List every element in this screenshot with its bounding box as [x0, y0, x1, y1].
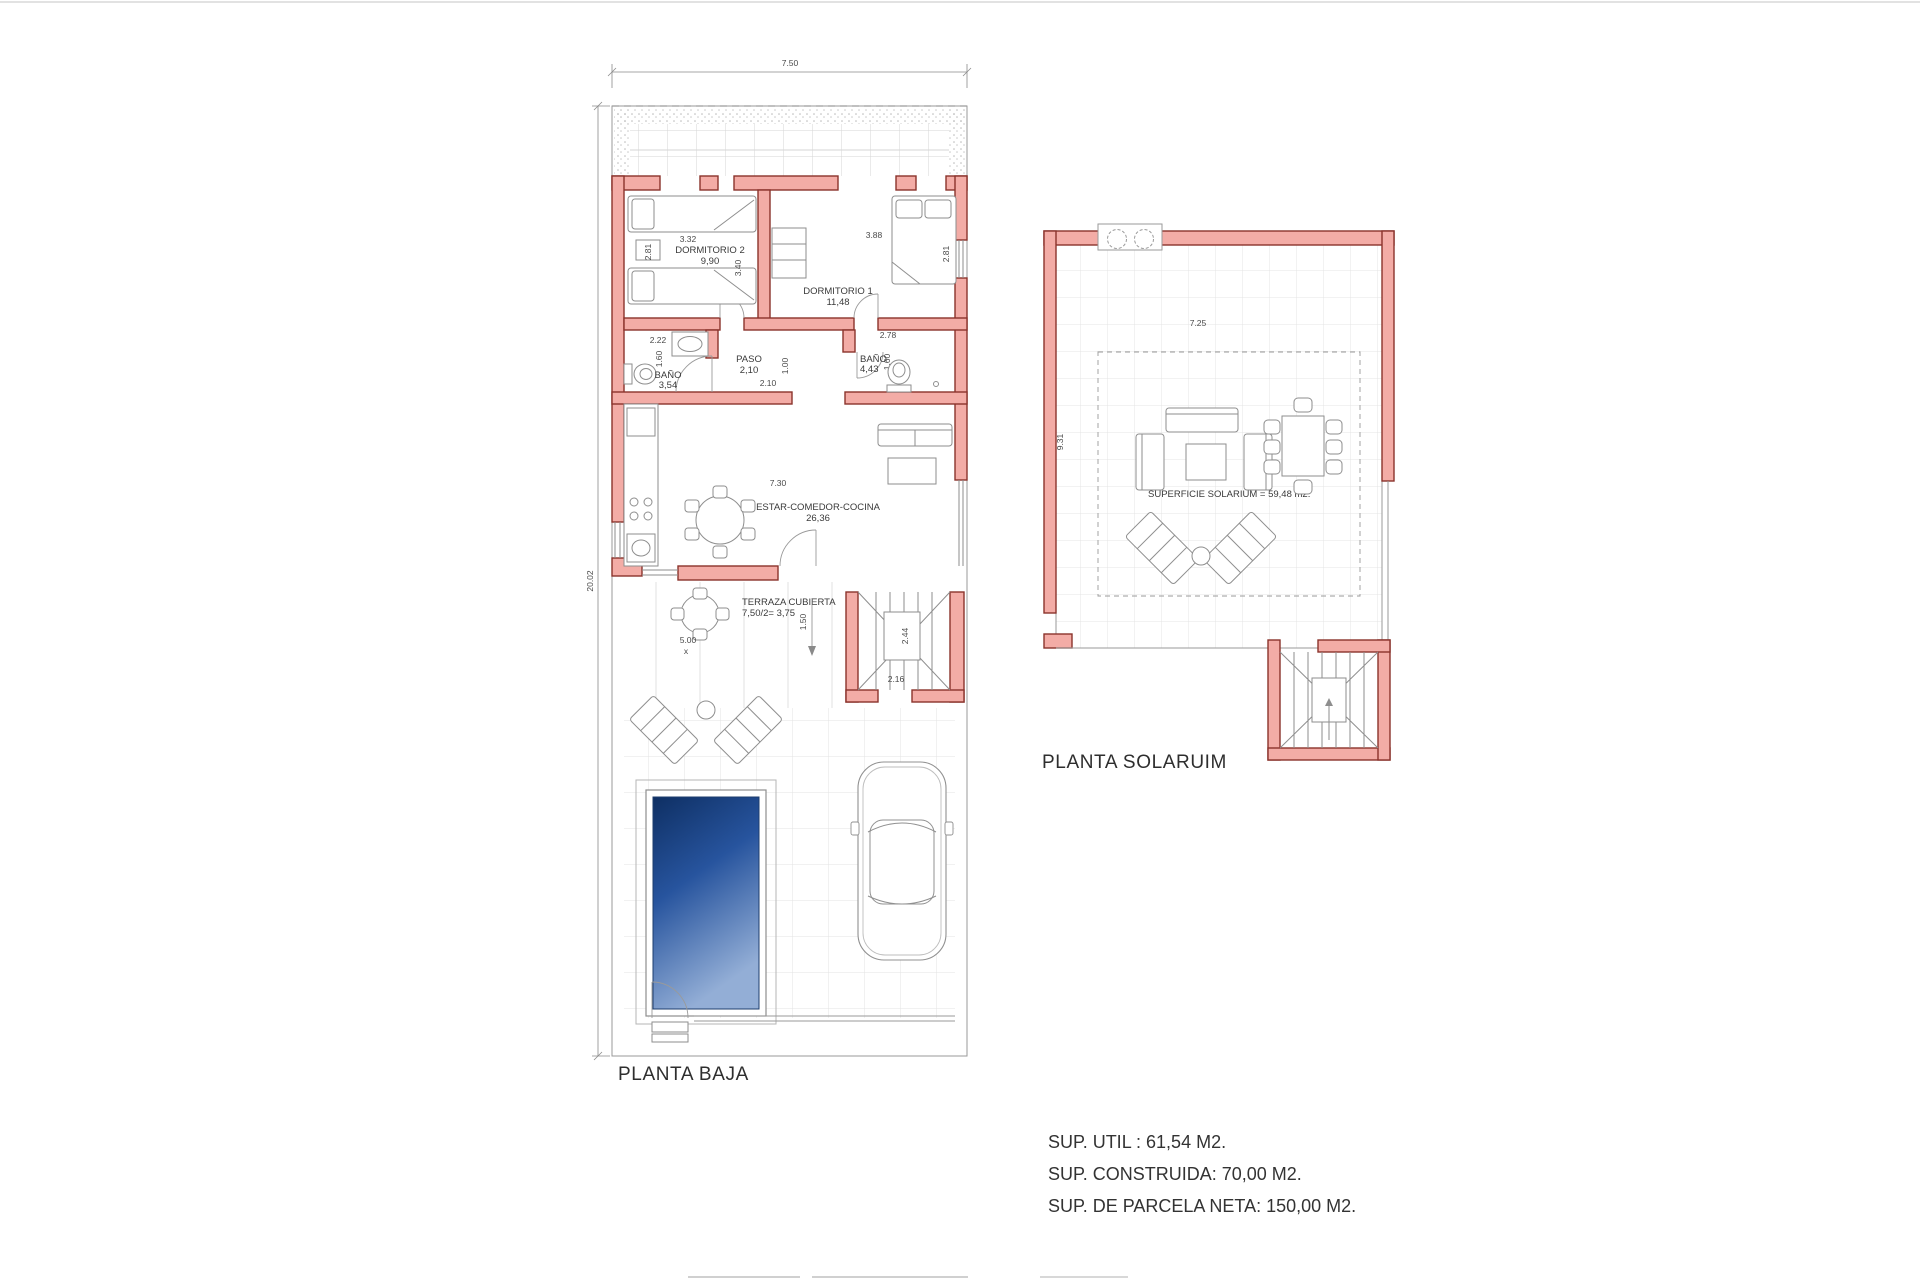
- living-kitchen: 7.30 ESTAR-COMEDOR-COCINA 26,36: [624, 404, 952, 566]
- dim-label: 3.88: [866, 230, 883, 240]
- bedroom-1: 3.88 2.81 DORMITORIO 1 11,48: [772, 196, 956, 308]
- planta-baja-title: PLANTA BAJA: [618, 1064, 749, 1085]
- room-label: PASO: [736, 354, 762, 365]
- area-label: 11,48: [826, 297, 849, 308]
- planta-solarium-title: PLANTA SOLARUIM: [1042, 752, 1227, 773]
- dim-label: 7.30: [770, 478, 787, 488]
- bathroom-2: 2.78 BAÑO 4,43 1.60: [860, 330, 939, 392]
- swimming-pool: [636, 780, 776, 1024]
- dim-label: 2.16: [888, 674, 905, 684]
- bedroom-2: 3.32 2.81 DORMITORIO 2 9,90 3.40: [628, 196, 756, 304]
- dimension-top: 7.50: [608, 58, 971, 88]
- sup-util-line: SUP. UTIL : 61,54 M2.: [1048, 1132, 1226, 1152]
- room-label: DORMITORIO 2: [675, 245, 745, 256]
- dim-label: 1.50: [798, 613, 808, 630]
- floor-plan-page: 7.50 20.02: [0, 0, 1920, 1280]
- dim-label: x: [684, 646, 689, 656]
- roof-band: [614, 108, 965, 176]
- sup-construida-line: SUP. CONSTRUIDA: 70,00 M2.: [1048, 1164, 1302, 1184]
- area-label: 7,50/2= 3,75: [742, 608, 795, 619]
- hallway: PASO 2,10 2.10 1.00: [736, 354, 790, 388]
- area-label: 9,90: [701, 256, 720, 267]
- summary-block: SUP. UTIL : 61,54 M2. SUP. CONSTRUIDA: 7…: [1048, 1132, 1356, 1216]
- dim-label: 2.81: [643, 243, 653, 260]
- area-label: 2,10: [740, 365, 759, 376]
- area-label: 4,43: [860, 364, 879, 375]
- dim-label: 2.78: [880, 330, 897, 340]
- dim-label: 5.00: [680, 635, 697, 645]
- room-label: DORMITORIO 1: [803, 286, 873, 297]
- dim-label: 7.50: [782, 58, 799, 68]
- solarium-stair-tower: [1268, 640, 1390, 760]
- sup-parcela-line: SUP. DE PARCELA NETA: 150,00 M2.: [1048, 1196, 1356, 1216]
- dim-label: 2.81: [941, 245, 951, 262]
- planta-solarium-plan: 7.25 9.31 SUPERFICIE SOLARIUM = 59,48 m2…: [1042, 224, 1394, 773]
- dimension-left: 20.02: [585, 102, 610, 1060]
- room-label: ESTAR-COMEDOR-COCINA: [756, 502, 881, 513]
- dim-label: 2.44: [900, 627, 910, 644]
- room-label: TERRAZA CUBIERTA: [742, 597, 836, 608]
- dim-label: 20.02: [585, 570, 595, 592]
- dim-label: 3.32: [680, 234, 697, 244]
- dim-label: 2.22: [650, 335, 667, 345]
- planta-baja-plan: 7.50 20.02: [585, 58, 971, 1085]
- staircase: 2.44 2.16: [858, 592, 950, 690]
- dim-label: 2.10: [760, 378, 777, 388]
- dim-label: 9.31: [1055, 433, 1065, 450]
- car: [851, 762, 953, 960]
- dim-label: 3.40: [733, 259, 743, 276]
- area-label: 3,54: [659, 380, 678, 391]
- solarium-surface-label: SUPERFICIE SOLARIUM = 59,48 m2.: [1148, 489, 1310, 500]
- bathroom-1: 2.22 1.60 BAÑO 3,54: [624, 332, 708, 391]
- dim-label: 7.25: [1190, 318, 1207, 328]
- vent-block: [1098, 224, 1162, 250]
- floor-plan-drawing: 7.50 20.02: [0, 0, 1920, 1280]
- area-label: 26,36: [806, 513, 830, 524]
- dim-label: 1.00: [780, 357, 790, 374]
- dim-label: 1.60: [654, 350, 664, 367]
